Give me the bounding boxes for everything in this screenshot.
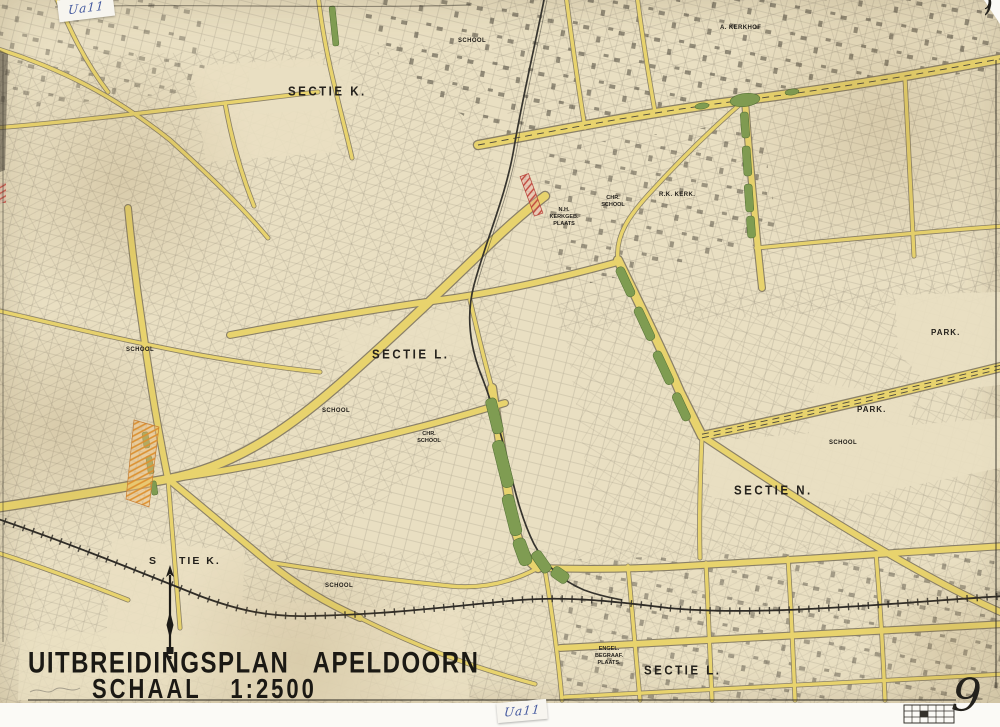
label-begraafplaats: ENGEL. BEGRAAF. PLAATS. (590, 646, 628, 667)
label-line: PLAATS (542, 221, 586, 228)
label-line: KERKGEB. (542, 214, 586, 221)
label-chr-school-center: CHR. SCHOOL (413, 431, 445, 445)
label-park-west: PARK. (857, 405, 886, 414)
map-paper: SECTIE K. SECTIE L. SECTIE N. SECTIE L. … (0, 0, 1000, 703)
map-labels-layer: SECTIE K. SECTIE L. SECTIE N. SECTIE L. … (0, 0, 1000, 703)
label-line: CHR. (413, 431, 445, 438)
index-grid-stamp (903, 704, 955, 724)
label-sectie-l-center: SECTIE L. (372, 348, 449, 362)
compass: S TIE K. (143, 553, 223, 665)
scanned-map-page: SECTIE K. SECTIE L. SECTIE N. SECTIE L. … (0, 0, 1000, 727)
label-school-east: SCHOOL (829, 440, 857, 446)
label-kerkhof: A. KERKHOF (720, 25, 761, 31)
label-line: SCHOOL (413, 438, 445, 445)
label-school-center: SCHOOL (322, 408, 350, 414)
label-line: CHR. (598, 195, 628, 202)
label-line: ENGEL. (590, 646, 628, 653)
label-line: N.H. (542, 207, 586, 214)
sticker-handwriting: Ua11 (503, 702, 541, 719)
label-rk-kerk: R.K. KERK. (659, 192, 695, 198)
numeral-glyph: 9 (985, 0, 1000, 19)
label-school-west: SCHOOL (126, 347, 154, 353)
label-line: SCHOOL (598, 202, 628, 209)
sticker-handwriting: Ua11 (67, 0, 104, 17)
north-arrow-icon (143, 563, 203, 663)
label-line: BEGRAAF. (590, 653, 628, 660)
handwritten-numeral-top-right: 9 (985, 0, 1000, 19)
label-sectie-k: SECTIE K. (288, 85, 367, 99)
label-park-north: PARK. (931, 328, 960, 337)
label-line: PLAATS. (590, 660, 628, 667)
map-scale: SCHAAL 1:2500 (92, 673, 317, 706)
label-sectie-l-south: SECTIE L. (644, 664, 721, 678)
label-chr-school-north: CHR. SCHOOL (598, 195, 628, 209)
label-school-top: SCHOOL (458, 38, 486, 44)
label-nh-kerkgebouw: N.H. KERKGEB. PLAATS (542, 207, 586, 228)
label-sectie-n: SECTIE N. (734, 484, 813, 498)
label-school-south: SCHOOL (325, 583, 353, 589)
